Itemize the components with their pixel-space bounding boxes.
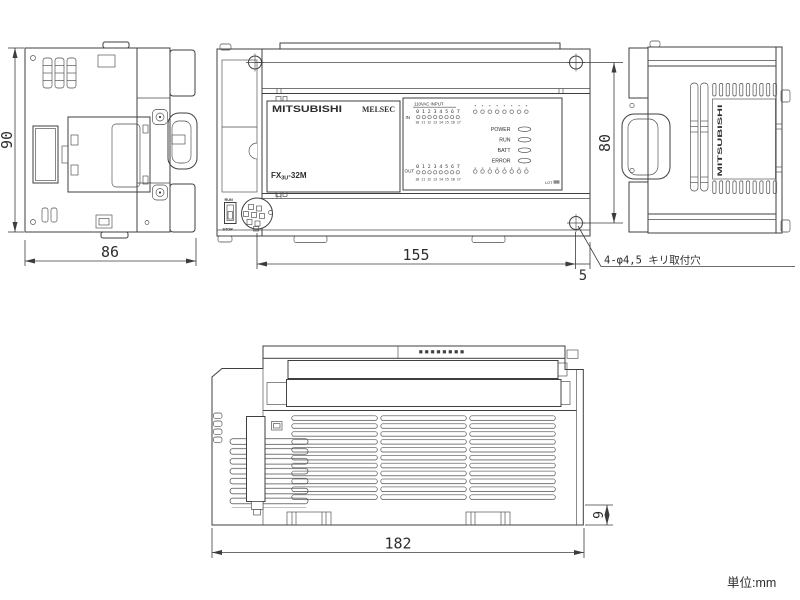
in-bottom-numbers: 10 11 12 13 14 15 16 17 [415, 121, 461, 125]
out-top-numbers: 0 1 2 3 4 5 6 7 [416, 164, 460, 170]
lot-label: LOT [545, 181, 553, 185]
input-voltage-title: 110VAC INPUT [414, 102, 444, 107]
dimension-80: 80 [583, 63, 623, 224]
case-details [31, 55, 168, 228]
status-led-label: BATT [498, 148, 512, 154]
din-rail-clip-right [622, 48, 670, 232]
out-led-row [415, 170, 460, 175]
dimension-5: 5 [576, 242, 591, 284]
dimension-86: 86 [25, 238, 196, 266]
programming-port [242, 198, 273, 231]
mounting-hole-callout-label: 4-φ4,5 キリ取付穴 [604, 254, 701, 267]
dimension-90: 90 [0, 48, 24, 232]
stop-switch-label: STOP [223, 228, 234, 232]
in-top-numbers: 0 1 2 3 4 5 6 7 [416, 109, 460, 115]
dimension-9: 9 [585, 505, 613, 525]
status-led-label: RUN [499, 138, 510, 144]
in-led-row [415, 115, 460, 120]
dim-80-label: 80 [596, 134, 614, 152]
right-name-plate: MITSUBISHI [713, 99, 776, 179]
bottom-foot [218, 236, 232, 242]
din-rail-clip-left [168, 50, 197, 232]
bottom-tab [101, 232, 128, 238]
left-side-view: 90 86 [0, 42, 197, 266]
top-tab [103, 42, 129, 48]
bottom-foot [294, 236, 327, 243]
drawing-svg: 90 86 [0, 0, 800, 600]
model-label: FX3U-32M [271, 171, 307, 182]
screw-icon [145, 221, 149, 225]
dimension-182: 182 [212, 528, 584, 558]
top-feet [287, 512, 510, 525]
dim-9-label: 9 [592, 511, 607, 519]
out-led-row-right [472, 169, 530, 174]
brand-logo-vertical: MITSUBISHI [718, 104, 724, 177]
dim-182-label: 182 [384, 535, 411, 553]
top-tab [650, 41, 660, 47]
top-view: 182 9 [212, 346, 613, 558]
plc-outline-drawing: 90 86 [0, 0, 800, 600]
screw-icon [31, 220, 36, 225]
dim-90-label: 90 [0, 131, 16, 149]
mounting-hole-callout: 4-φ4,5 キリ取付穴 [578, 226, 795, 267]
brand-logo: MITSUBISHI [272, 104, 342, 114]
right-side-view: MITSUBISHI [622, 41, 790, 233]
out-bottom-numbers: 10 11 12 13 14 15 16 17 [415, 178, 461, 182]
out-label: OUT [405, 169, 415, 174]
dim-5-label: 5 [579, 268, 587, 284]
left-side-body [25, 42, 170, 238]
latch-notch [249, 143, 257, 159]
dim-86-label: 86 [101, 243, 119, 261]
series-logo: MELSEC [362, 105, 395, 114]
dim-155-label: 155 [402, 246, 429, 264]
run-switch-label: RUN [225, 198, 233, 202]
unit-note: 単位:mm [727, 575, 776, 590]
mini-din-connector-icon [242, 198, 273, 229]
expansion-port-cover [68, 117, 150, 192]
terminal-block-rows [267, 361, 570, 407]
name-plate: MITSUBISHI MELSEC FX3U-32M [267, 97, 400, 197]
out-led-marks [472, 167, 530, 169]
in-label: IN [406, 115, 411, 120]
status-led-label: ERROR [492, 159, 511, 165]
led-panel: 110VAC INPUT IN 0 1 2 3 4 5 6 7 10 11 12… [403, 98, 562, 190]
in-led-row-right [472, 109, 530, 114]
screw-icon [31, 56, 36, 61]
run-stop-switch: RUN STOP [223, 198, 237, 232]
status-led-label: POWER [491, 127, 511, 133]
in-led-marks [472, 105, 530, 107]
dimension-155: 155 [257, 232, 576, 269]
bottom-foot [472, 236, 505, 243]
